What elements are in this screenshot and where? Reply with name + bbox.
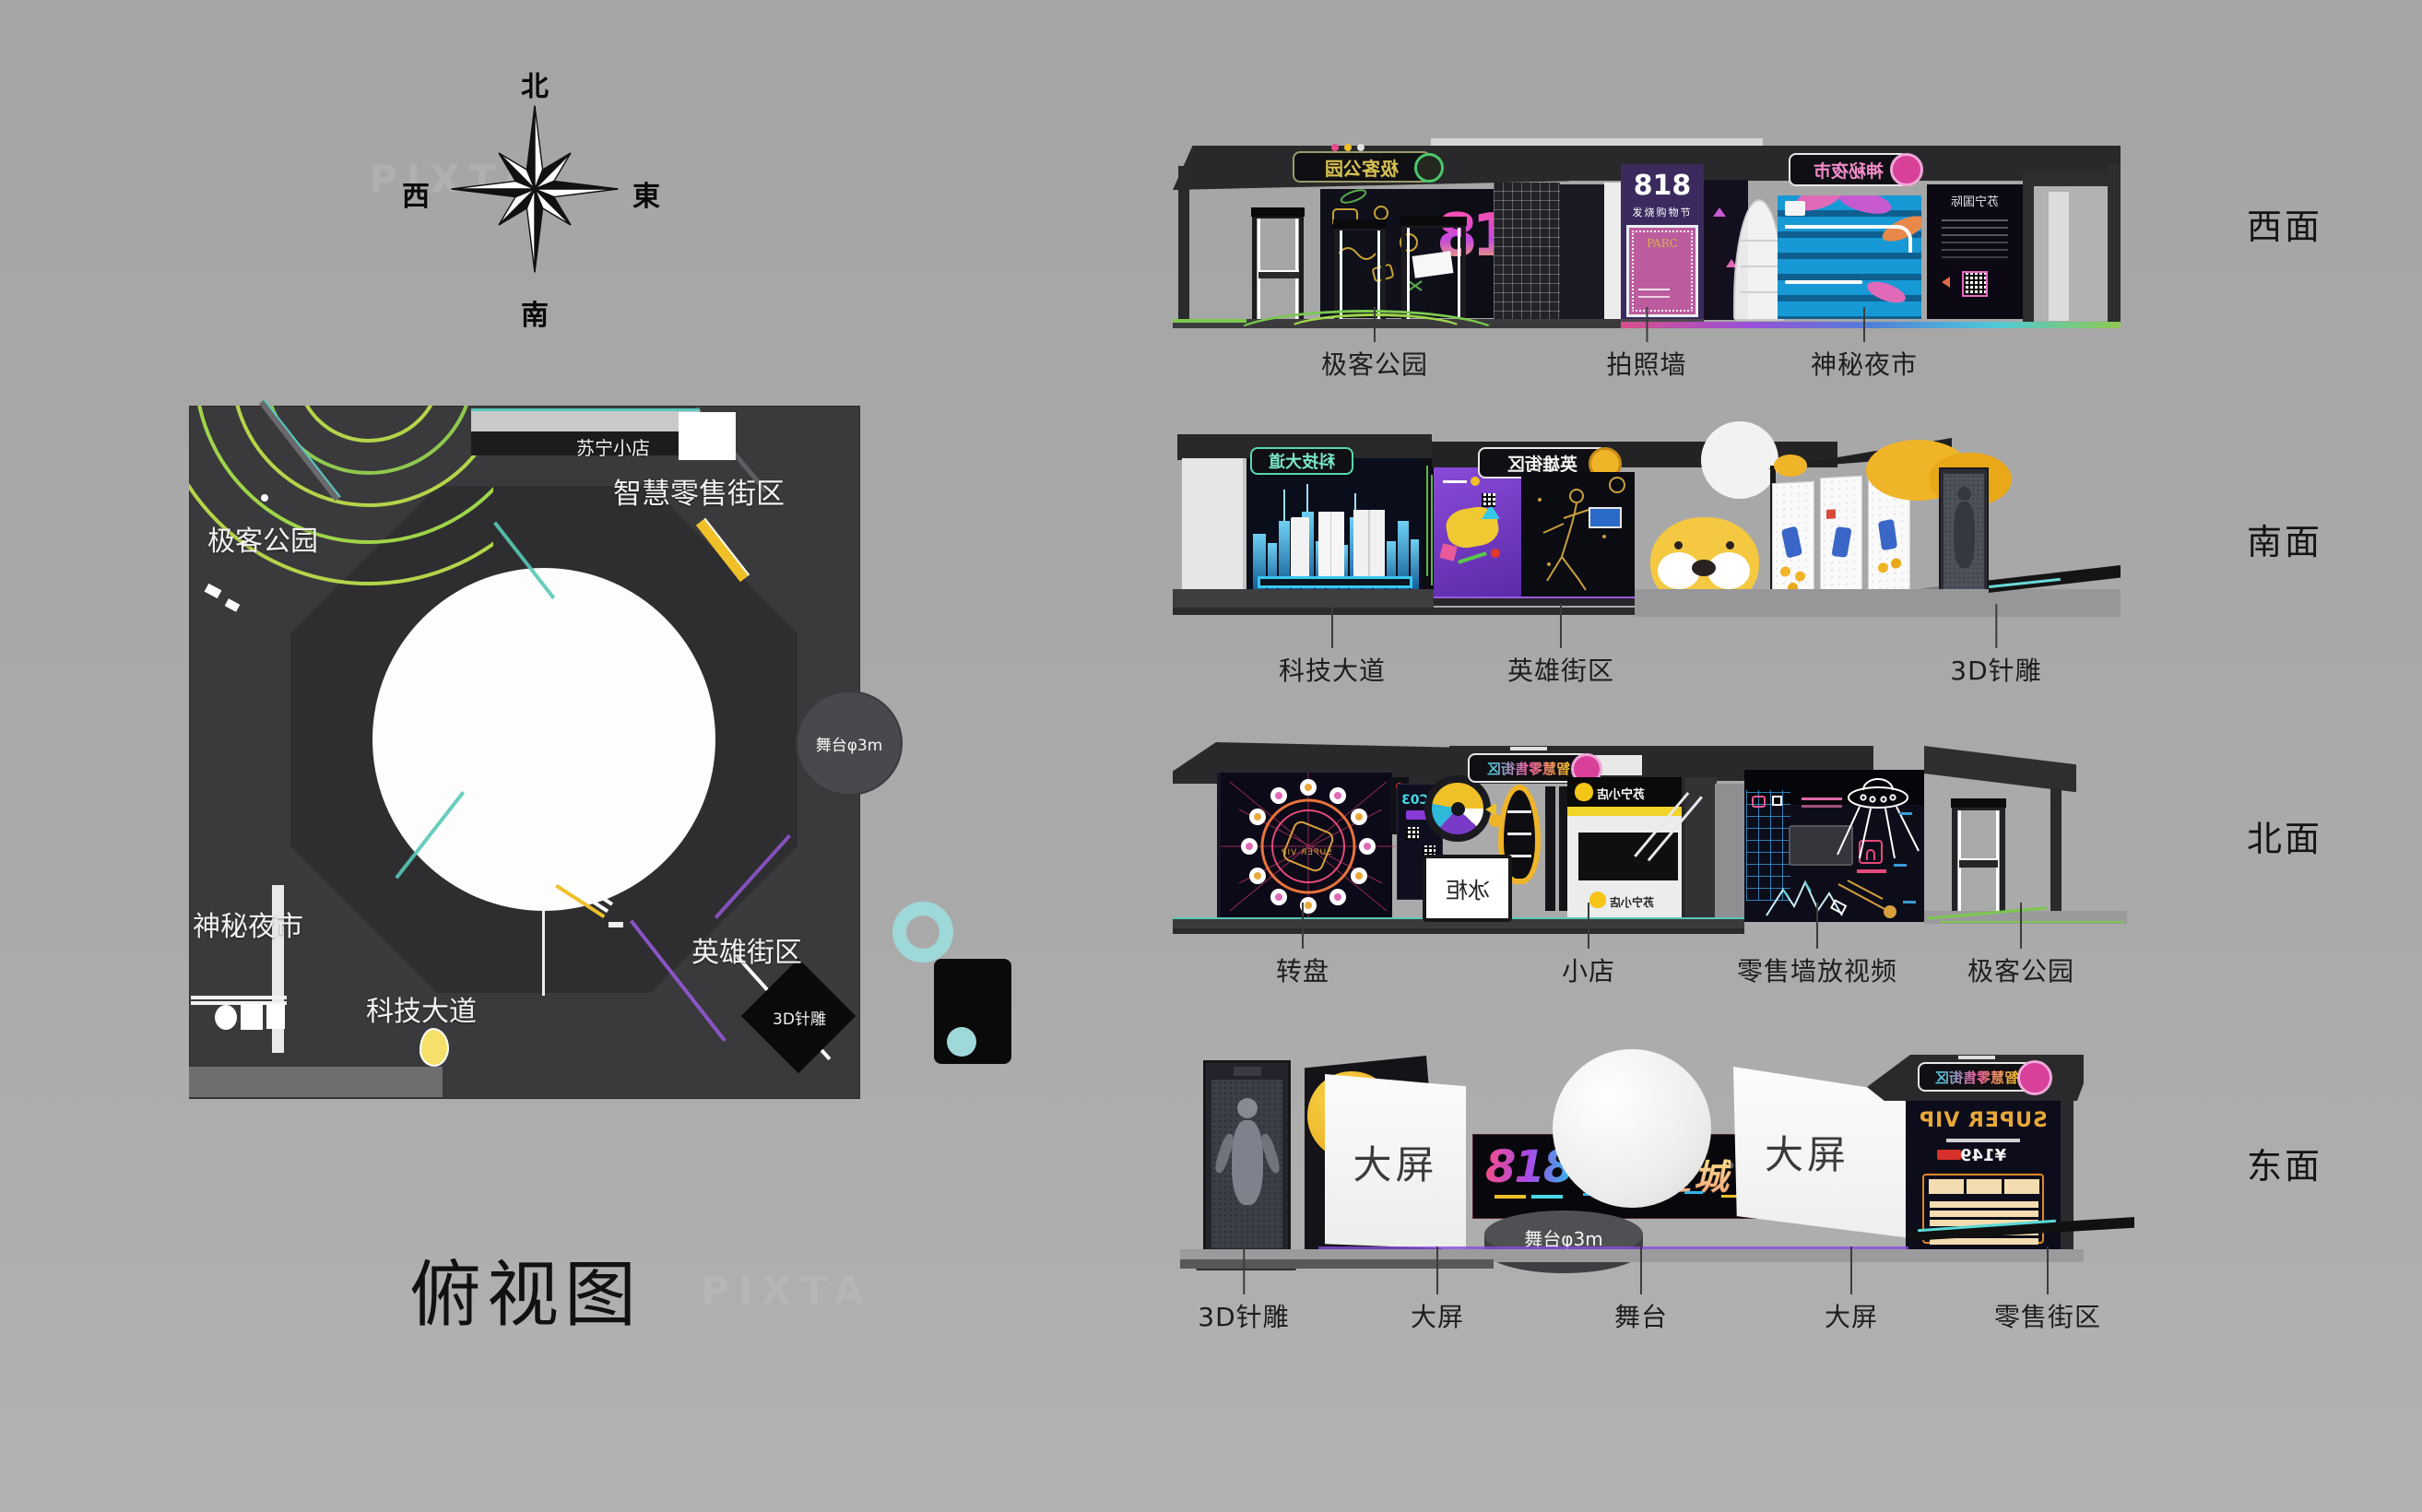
board-phone: [1781, 526, 1802, 558]
plan-center-tick: [542, 911, 545, 996]
plan-loading-strip: [189, 1067, 443, 1097]
elevation-west: 极客公园 818: [1173, 138, 2121, 334]
floor-base: [1173, 928, 1744, 934]
plan-label-hero-street: 英雄街区: [691, 929, 802, 970]
end-interior: [2034, 186, 2108, 321]
north-label-4: 极客公园: [1967, 903, 2074, 988]
vip-title: SUPER VIP: [1919, 1109, 2048, 1132]
retail-street-sign-east-text: 智慧零售街区: [1935, 1068, 2018, 1087]
small-screen: [1589, 507, 1622, 528]
backdrop-sub-bars: [1495, 1195, 1526, 1199]
compass-rose: 北 南 西 東: [415, 51, 655, 327]
plan-round-table: [215, 1005, 237, 1030]
qr-code-icon: [1962, 271, 1988, 297]
north-label-3: 零售墙放视频: [1737, 903, 1897, 988]
plan-stage-circle: 舞台φ3m: [796, 691, 903, 796]
pin-texture: [1211, 1080, 1282, 1248]
watermark: PIXTA: [701, 1268, 873, 1313]
tech-avenue-sign-text: 科技大道: [1269, 449, 1335, 473]
mascot-eye: [1674, 541, 1683, 549]
plan-label-geek-park: 极客公园: [207, 518, 318, 559]
face-label-north: 北面: [2247, 810, 2322, 861]
big-screen-left-text: 大屏: [1353, 1134, 1437, 1190]
west-label-1: 极客公园: [1321, 307, 1428, 382]
gantry-tablet: [1412, 251, 1454, 278]
brand-logos-icon: [1331, 144, 1339, 151]
pin-figure-body: [1232, 1120, 1263, 1205]
white-swoosh: [1785, 225, 1912, 253]
plan-label-mystery-market: 神秘夜市: [193, 904, 303, 944]
face-label-west: 西面: [2247, 198, 2322, 249]
appliance-fridge-2door: [1353, 510, 1385, 578]
floor-plan: 3D针雕 舞台φ3m 极客公园 苏宁小店 智慧零售街区 神秘夜市 科技大道 英雄…: [189, 406, 860, 1099]
south-label-3: 3D针雕: [1950, 604, 2041, 688]
shelf-lines: [1507, 810, 1531, 813]
plan-shop-roof: [471, 408, 700, 431]
pin-figure-head: [1237, 1098, 1258, 1118]
big-screen-left: 大屏: [1325, 1074, 1466, 1249]
gantry-frame: [1952, 805, 2005, 915]
white-sphere: [1553, 1049, 1711, 1208]
deco-triangle: [1942, 277, 1950, 288]
side-screen: [1182, 458, 1246, 589]
sign-badge-icon: [2017, 1060, 2052, 1095]
mini-caption: [1443, 480, 1467, 483]
sticker-dot: [1491, 549, 1500, 558]
white-icon: [1772, 796, 1782, 806]
south-label-2: 英雄街区: [1507, 604, 1614, 688]
freezer-sign: 冰柜: [1423, 855, 1512, 922]
sticker-bar: [1458, 551, 1487, 564]
appliance-ac: [1291, 517, 1309, 584]
table-header-cells: [1929, 1179, 1964, 1194]
gantry-shelf: [1959, 858, 1998, 868]
gantry-header: [1333, 219, 1387, 229]
geek-park-arcs: [189, 406, 493, 940]
big-screen-right-text: 大屏: [1765, 1124, 1849, 1180]
plan-label-pin-art: 3D针雕: [763, 1006, 835, 1029]
speech-bubble-icon: [1774, 455, 1807, 477]
dark-wall: [1560, 184, 1604, 319]
north-label-2: 小店: [1562, 903, 1615, 988]
east-label-5: 零售街区: [1994, 1246, 2101, 1334]
board-blobs: [1826, 509, 1836, 519]
mini-caption: [1510, 747, 1547, 750]
east-label-3: 舞台: [1614, 1246, 1668, 1334]
pink-icon: [1752, 796, 1766, 808]
mascot-mane: [1701, 421, 1778, 499]
gantry-header: [1951, 798, 2006, 808]
duck-beak: [1489, 814, 1502, 827]
pin-art-panel: [1939, 467, 1989, 606]
wheel-hub: [1451, 802, 1465, 816]
geek-park-sign-text: 极客公园: [1325, 154, 1399, 181]
gantry-shelf: [1258, 270, 1299, 278]
hero-board: [1772, 481, 1814, 601]
circuit-lines: [1426, 466, 1428, 576]
store-window: [1578, 833, 1678, 880]
teal-ring-prop: [892, 902, 953, 963]
sign-badge-icon: [1414, 153, 1444, 183]
floor-apron: [1635, 589, 2121, 617]
gantry-header: [1251, 207, 1305, 217]
compass-east-label: 東: [632, 173, 660, 214]
plan-table: [266, 1004, 285, 1029]
deco-triangle: [1713, 207, 1726, 217]
palm-wall: [1778, 195, 1921, 319]
sticker-square: [1439, 543, 1457, 561]
plan-label-tech-avenue: 科技大道: [366, 988, 477, 1029]
vip-price-wrap: ¥149: [1906, 1146, 2061, 1165]
face-label-south: 南面: [2247, 514, 2322, 564]
mini-dot: [1471, 477, 1480, 486]
teal-dot: [947, 1027, 976, 1057]
retail-street-sign-text: 智慧零售街区: [1487, 759, 1570, 778]
store-mascot-icon: [1575, 783, 1593, 801]
gantry-rail: [1458, 228, 1460, 323]
ufo-line-art-icon: [1832, 770, 1924, 862]
plan-counter-lines: [191, 996, 287, 999]
qr-code-icon: [1406, 827, 1419, 840]
plan-label-smart-retail: 智慧零售街区: [613, 470, 785, 512]
cage-mesh: [1494, 183, 1560, 321]
pin-texture: [1944, 474, 1984, 597]
canopy-slanted: [1924, 746, 2076, 792]
white-line: [1785, 280, 1862, 284]
store-header: 苏宁小店: [1567, 777, 1687, 807]
sign-badge-icon: [1890, 153, 1923, 186]
end-beam: [2023, 173, 2121, 186]
geek-park-sign: 极客公园: [1293, 151, 1431, 183]
east-label-4: 大屏: [1825, 1246, 1878, 1334]
gantry-frame: [1252, 214, 1304, 323]
lightbox-text-lines: [1638, 289, 1670, 290]
vip-subtitle-bar: [1946, 1139, 2020, 1142]
neon-platform: [1258, 576, 1412, 588]
elevation-south: 科技大道 英雄街区: [1173, 429, 2121, 624]
concrete-pillar: [1715, 784, 1744, 922]
zodiac-center-text-wrap: SUPER VIP: [1221, 841, 1392, 858]
table-rows: [1930, 1201, 2038, 1208]
west-label-3: 神秘夜市: [1811, 307, 1918, 382]
photo-wall-818: 818: [1621, 170, 1704, 202]
store-logo-text: 苏宁小店: [1597, 785, 1645, 802]
north-label-1: 转盘: [1276, 903, 1329, 988]
hero-dark-wall: [1521, 472, 1635, 598]
mascot-eye: [1726, 541, 1734, 549]
info-panel: 苏宁国际: [1927, 184, 2023, 319]
gantry-header: [1400, 217, 1467, 226]
photo-wall-festival: 发烧购物节: [1621, 205, 1704, 219]
plan-duck-mascot: [419, 1028, 449, 1067]
plan-label-suning-shop: 苏宁小店: [576, 433, 650, 460]
photo-wall: 818 发烧购物节 PARC: [1621, 164, 1704, 323]
info-text-lines: [1942, 219, 2008, 221]
face-label-east: 东面: [2247, 1138, 2322, 1188]
gap-wall: [1685, 777, 1717, 922]
tech-room-interior: [1246, 458, 1424, 589]
post: [2023, 173, 2034, 326]
design-board: PIXTA PIXTA 北 南 西 東: [0, 0, 2422, 1512]
info-panel-title-wrap: 苏宁国际: [1927, 192, 2023, 209]
post: [1178, 166, 1189, 326]
mascot-nose: [1692, 560, 1716, 576]
mini-caption: [1958, 1056, 1995, 1059]
dark-pillars: [1545, 786, 1555, 911]
hero-board: [1820, 476, 1862, 599]
appliance-fridge: [1318, 512, 1344, 584]
plan-table: [241, 1004, 263, 1030]
post: [2108, 164, 2121, 328]
compass-star-icon: [447, 101, 622, 277]
blue-dashes: [1899, 812, 1912, 815]
compass-north-label: 北: [415, 64, 655, 104]
info-panel-title: 苏宁国际: [1951, 192, 1999, 209]
graffiti-wall: [1434, 467, 1521, 598]
board-phone: [1831, 526, 1851, 558]
vip-price: ¥149: [1960, 1146, 2006, 1165]
neon-doodle-wall: [1744, 770, 1924, 922]
white-column: [2049, 192, 2069, 321]
south-label-1: 科技大道: [1279, 604, 1386, 688]
prize-wheel: [1424, 775, 1491, 842]
mirror-lightbox: PARC: [1626, 225, 1698, 317]
vip-title-wrap: SUPER VIP: [1906, 1109, 2061, 1132]
price-tag-icon: [1937, 1150, 1961, 1160]
board-blobs: [1878, 562, 1888, 573]
arch-shelf-lines: [1741, 240, 1779, 242]
sticker-qr-icon: [1482, 493, 1495, 507]
storefront: 苏宁小店 苏宁小店: [1567, 777, 1687, 922]
floor-green-edge: [1173, 319, 1246, 323]
gold-player-outline: [1521, 472, 1635, 598]
black-door-prop: [934, 959, 1011, 1064]
pin-art-panel: [1203, 1060, 1291, 1258]
pink-bar: [1857, 869, 1886, 873]
page-title: 俯视图: [409, 1237, 642, 1341]
freezer-sign-text: 冰柜: [1446, 872, 1490, 904]
night-market-sign-text: 神秘夜市: [1814, 158, 1884, 183]
white-divider: [1604, 183, 1621, 321]
east-label-1: 3D针雕: [1198, 1246, 1289, 1334]
zodiac-panel: SUPER VIP: [1217, 773, 1392, 922]
store-logo-text-2: 苏宁小店: [1610, 894, 1654, 910]
night-market-sign: 神秘夜市: [1789, 153, 1908, 186]
west-label-2: 拍照墙: [1606, 307, 1686, 382]
pin-figure-head: [1957, 487, 1971, 501]
board-phone: [1878, 519, 1897, 551]
mini-badge: [1785, 201, 1805, 216]
plan-marker: [608, 922, 623, 927]
plan-white-block: [679, 412, 736, 460]
tech-avenue-sign: 科技大道: [1250, 447, 1353, 475]
lightbox-brand: PARC: [1629, 237, 1695, 250]
compass-west-label: 西: [402, 173, 430, 214]
post: [2050, 788, 2062, 917]
compass-south-label: 南: [415, 292, 655, 333]
board-blobs: [1780, 566, 1790, 577]
panel-label-bar: [1234, 1067, 1261, 1076]
retail-street-sign-east: 智慧零售街区: [1918, 1062, 2036, 1092]
zodiac-center-text: SUPER VIP: [1281, 848, 1332, 857]
plan-label-stage: 舞台φ3m: [816, 732, 883, 755]
pin-figure-body: [1954, 502, 1975, 568]
east-label-2: 大屏: [1411, 1246, 1464, 1334]
